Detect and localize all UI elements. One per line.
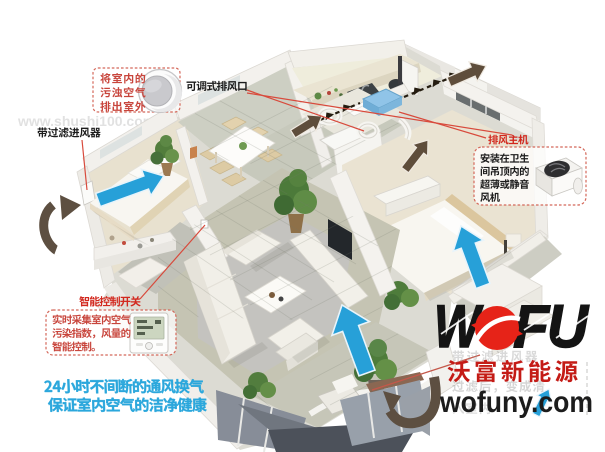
- svg-text:U: U: [547, 293, 590, 360]
- svg-text:wofuny.com: wofuny.com: [439, 386, 593, 419]
- svg-text:www.shushi100.com: www.shushi100.com: [17, 113, 155, 129]
